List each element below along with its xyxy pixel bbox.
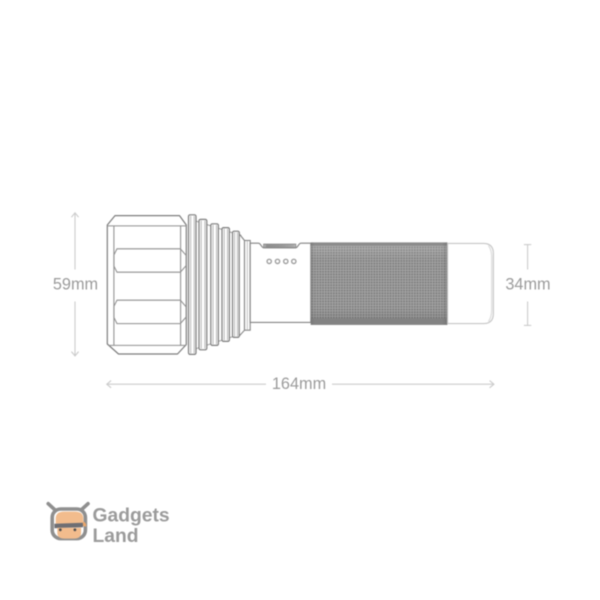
svg-text:Land: Land [93,526,139,547]
svg-text:34mm: 34mm [505,276,550,294]
svg-text:59mm: 59mm [53,276,98,294]
svg-text:164mm: 164mm [272,375,326,393]
svg-text:Gadgets: Gadgets [93,506,170,527]
